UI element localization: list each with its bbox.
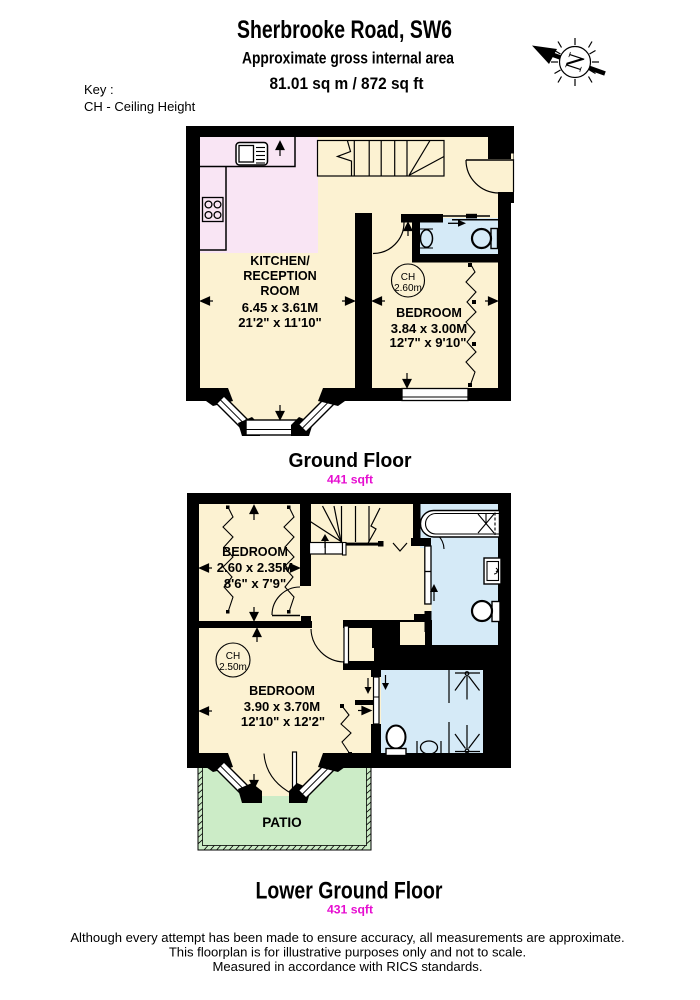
- svg-text:3.90 x 3.70M: 3.90 x 3.70M: [244, 699, 321, 714]
- svg-text:21'2" x 11'10": 21'2" x 11'10": [238, 315, 321, 330]
- svg-text:CH - Ceiling Height: CH - Ceiling Height: [84, 99, 196, 114]
- svg-text:This floorplan is for illustra: This floorplan is for illustrative purpo…: [169, 945, 526, 960]
- svg-text:Measured in accordance with RI: Measured in accordance with RICS standar…: [212, 959, 482, 974]
- svg-text:8'6" x 7'9": 8'6" x 7'9": [224, 576, 286, 591]
- svg-text:Ground Floor: Ground Floor: [289, 450, 412, 472]
- svg-text:Lower Ground Floor: Lower Ground Floor: [256, 878, 443, 905]
- svg-text:2.50m: 2.50m: [219, 662, 247, 673]
- svg-text:ROOM: ROOM: [260, 284, 299, 298]
- svg-text:2.60 x 2.35M: 2.60 x 2.35M: [217, 560, 294, 575]
- svg-text:CH: CH: [226, 651, 240, 662]
- svg-text:Key :: Key :: [84, 82, 114, 97]
- svg-text:BEDROOM: BEDROOM: [249, 684, 315, 698]
- svg-text:KITCHEN/: KITCHEN/: [250, 254, 310, 268]
- svg-text:Sherbrooke Road, SW6: Sherbrooke Road, SW6: [237, 16, 452, 44]
- svg-text:441 sqft: 441 sqft: [327, 473, 373, 487]
- svg-text:12'7" x 9'10": 12'7" x 9'10": [390, 335, 467, 350]
- svg-text:CH: CH: [401, 272, 415, 283]
- svg-text:81.01 sq m / 872 sq ft: 81.01 sq m / 872 sq ft: [270, 74, 424, 93]
- svg-text:431 sqft: 431 sqft: [327, 903, 373, 917]
- svg-text:Approximate gross internal are: Approximate gross internal area: [242, 49, 454, 68]
- svg-text:12'10" x 12'2": 12'10" x 12'2": [241, 714, 325, 729]
- svg-text:BEDROOM: BEDROOM: [396, 306, 462, 320]
- svg-text:Although every attempt has bee: Although every attempt has been made to …: [70, 930, 624, 945]
- svg-text:3.84 x 3.00M: 3.84 x 3.00M: [391, 321, 468, 336]
- svg-text:PATIO: PATIO: [262, 815, 302, 830]
- svg-text:6.45 x 3.61M: 6.45 x 3.61M: [242, 300, 319, 315]
- svg-text:BEDROOM: BEDROOM: [222, 545, 288, 559]
- svg-text:RECEPTION: RECEPTION: [243, 269, 316, 283]
- svg-text:2.60m: 2.60m: [394, 283, 422, 294]
